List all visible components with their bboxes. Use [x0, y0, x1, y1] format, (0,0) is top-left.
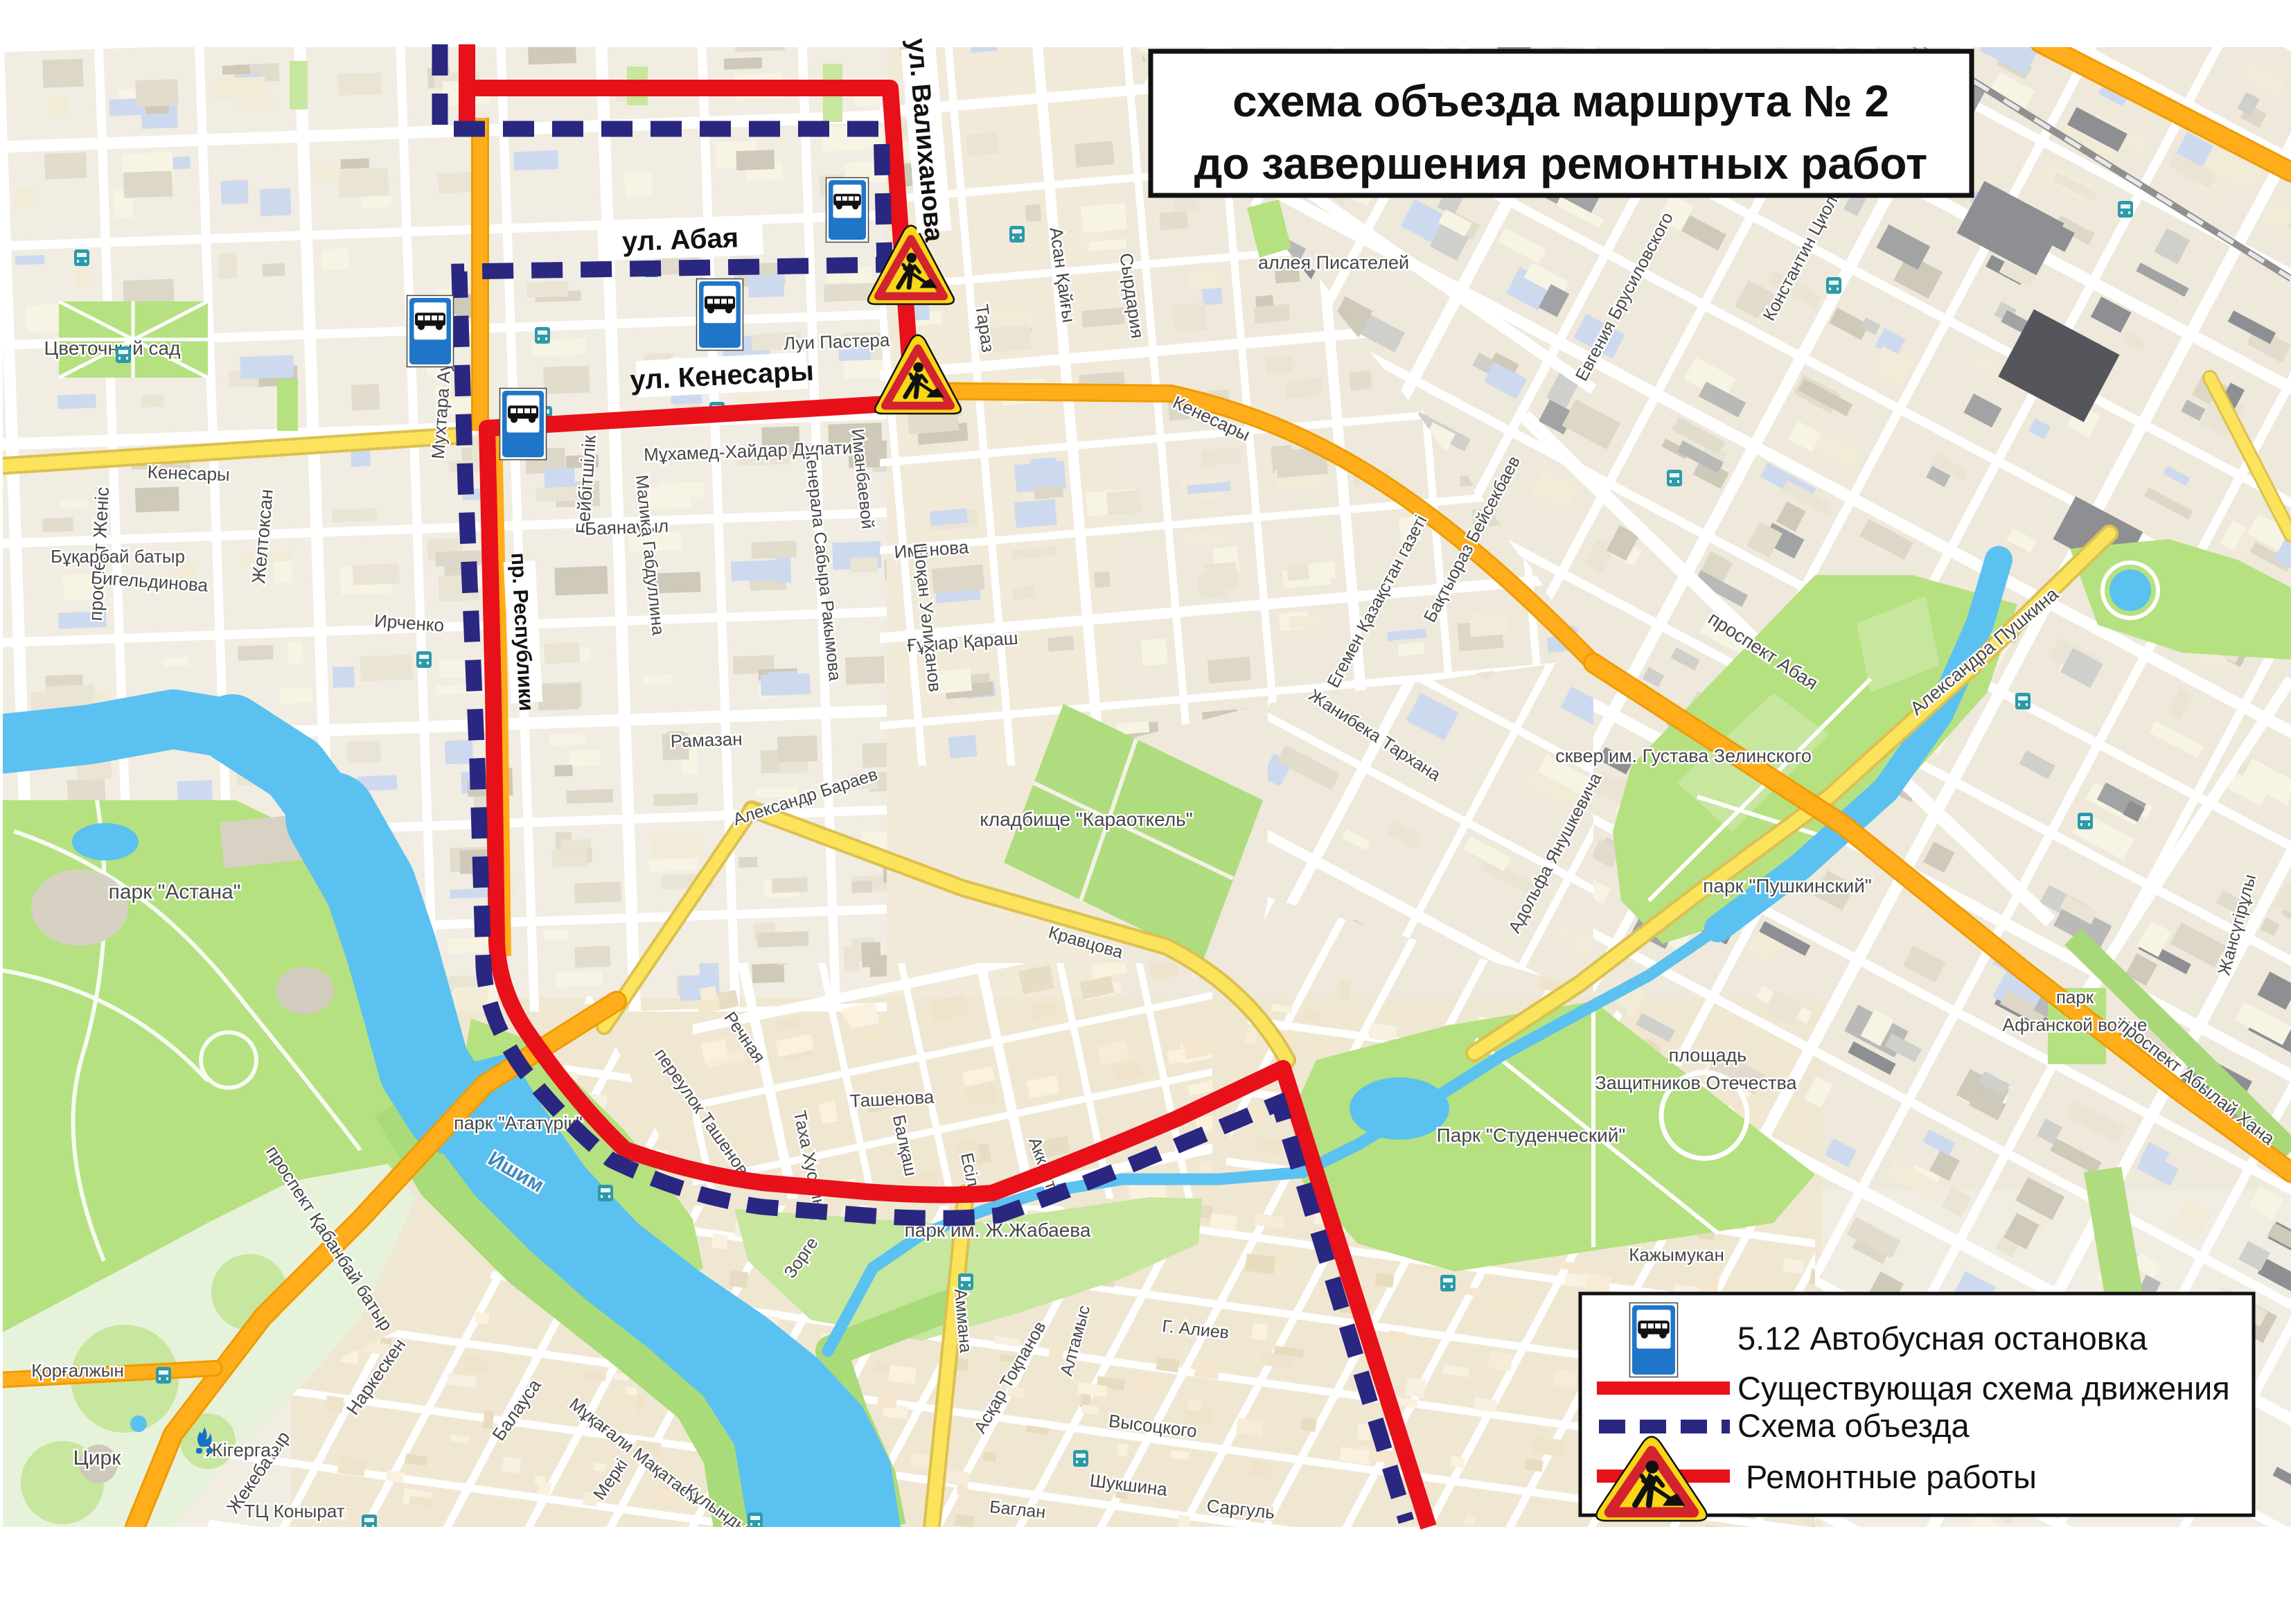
- svg-text:сквер им. Густава Зелинского: сквер им. Густава Зелинского: [1555, 745, 1812, 766]
- svg-text:Схема объезда: Схема объезда: [1737, 1407, 1970, 1444]
- svg-text:Ташенова: Ташенова: [849, 1086, 935, 1111]
- svg-text:Существующая схема движения: Существующая схема движения: [1737, 1370, 2230, 1406]
- svg-text:до завершения ремонтных работ: до завершения ремонтных работ: [1194, 139, 1928, 188]
- svg-text:парк "Ататүрік": парк "Ататүрік": [454, 1113, 583, 1133]
- svg-text:Кажымукан: Кажымукан: [1629, 1244, 1724, 1265]
- svg-text:Парк "Студенческий": Парк "Студенческий": [1437, 1124, 1626, 1146]
- svg-text:парк "Пушкинский": парк "Пушкинский": [1703, 875, 1872, 897]
- svg-text:ул. Абая: ул. Абая: [621, 222, 738, 257]
- svg-text:кладбище "Караоткель": кладбище "Караоткель": [980, 809, 1192, 830]
- svg-text:схема объезда маршрута № 2: схема объезда маршрута № 2: [1232, 76, 1889, 126]
- svg-text:Жігергаз: Жігергаз: [206, 1440, 280, 1460]
- svg-text:Бұқарбай батыр: Бұқарбай батыр: [51, 546, 185, 567]
- svg-text:Цирк: Цирк: [73, 1447, 122, 1469]
- svg-text:ТЦ Конырат: ТЦ Конырат: [244, 1501, 344, 1521]
- svg-text:Цветочный сад: Цветочный сад: [44, 337, 181, 359]
- svg-text:Луи Пастера: Луи Пастера: [784, 329, 891, 353]
- svg-text:Қорғалжын: Қорғалжын: [31, 1360, 124, 1381]
- svg-text:Кенесары: Кенесары: [147, 461, 230, 485]
- svg-text:парк "Астана": парк "Астана": [109, 881, 241, 903]
- svg-text:аллея Писателей: аллея Писателей: [1258, 252, 1409, 273]
- svg-text:Защитников Отечества: Защитников Отечества: [1595, 1073, 1797, 1093]
- svg-text:5.12 Автобусная остановка: 5.12 Автобусная остановка: [1737, 1320, 2148, 1357]
- svg-text:Рамазан: Рамазан: [670, 728, 743, 752]
- svg-text:площадь: площадь: [1669, 1045, 1747, 1066]
- svg-text:парк: парк: [2056, 987, 2094, 1007]
- svg-text:Ремонтные работы: Ремонтные работы: [1746, 1458, 2037, 1495]
